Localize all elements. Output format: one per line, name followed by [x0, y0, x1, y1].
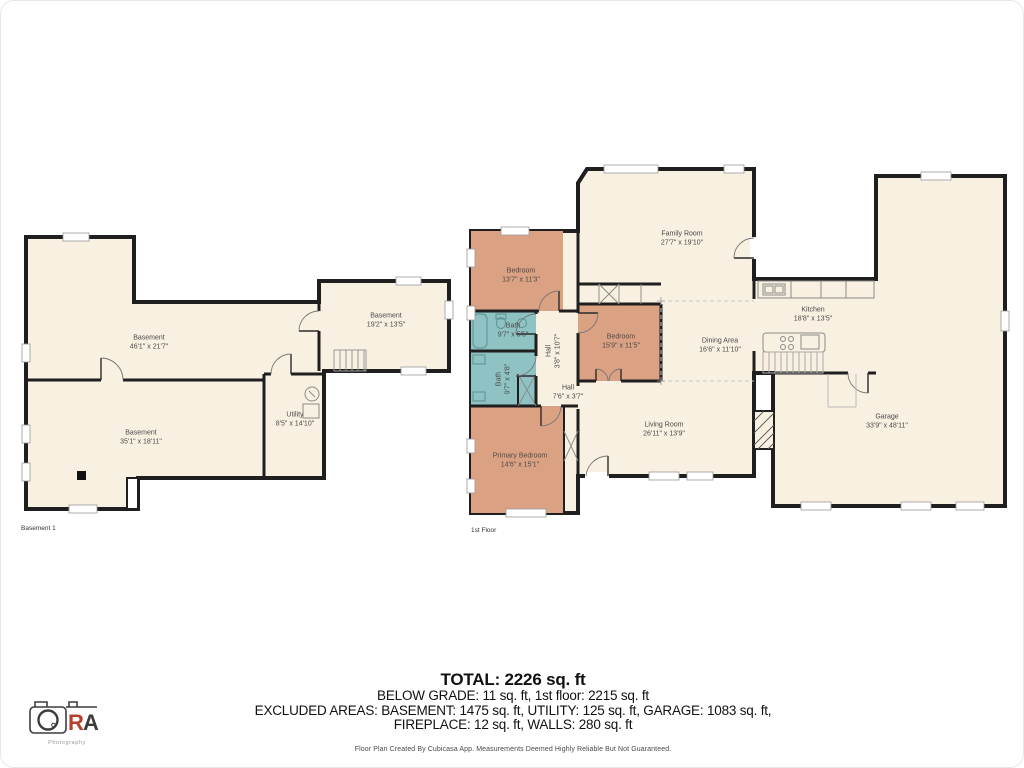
primary-bedroom-fill	[471, 406, 564, 513]
summary-total: TOTAL: 2226 sq. ft	[1, 670, 1024, 689]
fireplace	[754, 411, 774, 449]
first-floor-caption: 1st Floor	[471, 527, 496, 534]
floor-plan-drawing	[1, 1, 1024, 768]
bath-lower-fill	[471, 351, 536, 406]
summary-line-grade: BELOW GRADE: 11 sq. ft, 1st floor: 2215 …	[1, 689, 1024, 704]
basement-step-notch	[127, 478, 138, 509]
first-floor-plan	[467, 165, 1009, 517]
summary-line-excluded-2: FIREPLACE: 12 sq. ft, WALLS: 280 sq. ft	[1, 718, 1024, 733]
basement-floor-plan	[22, 233, 453, 513]
logo-subtitle: Photography	[48, 740, 86, 746]
basement-outline	[26, 237, 449, 509]
bath-upper-fill	[471, 311, 536, 351]
basement-caption: Basement 1	[21, 525, 56, 532]
area-summary: TOTAL: 2226 sq. ft BELOW GRADE: 11 sq. f…	[1, 670, 1024, 753]
ora-photography-logo: R A Photography	[27, 691, 105, 753]
disclaimer-text: Floor Plan Created By Cubicasa App. Meas…	[1, 746, 1024, 753]
floor-plan-page: Basement 46'1" x 21'7" Basement 19'2" x …	[0, 0, 1024, 768]
logo-letter-r: R	[68, 710, 84, 735]
summary-line-excluded: EXCLUDED AREAS: BASEMENT: 1475 sq. ft, U…	[1, 704, 1024, 719]
logo-letter-a: A	[83, 710, 99, 735]
support-post	[77, 471, 86, 480]
bedroom-topleft-fill	[471, 231, 563, 311]
